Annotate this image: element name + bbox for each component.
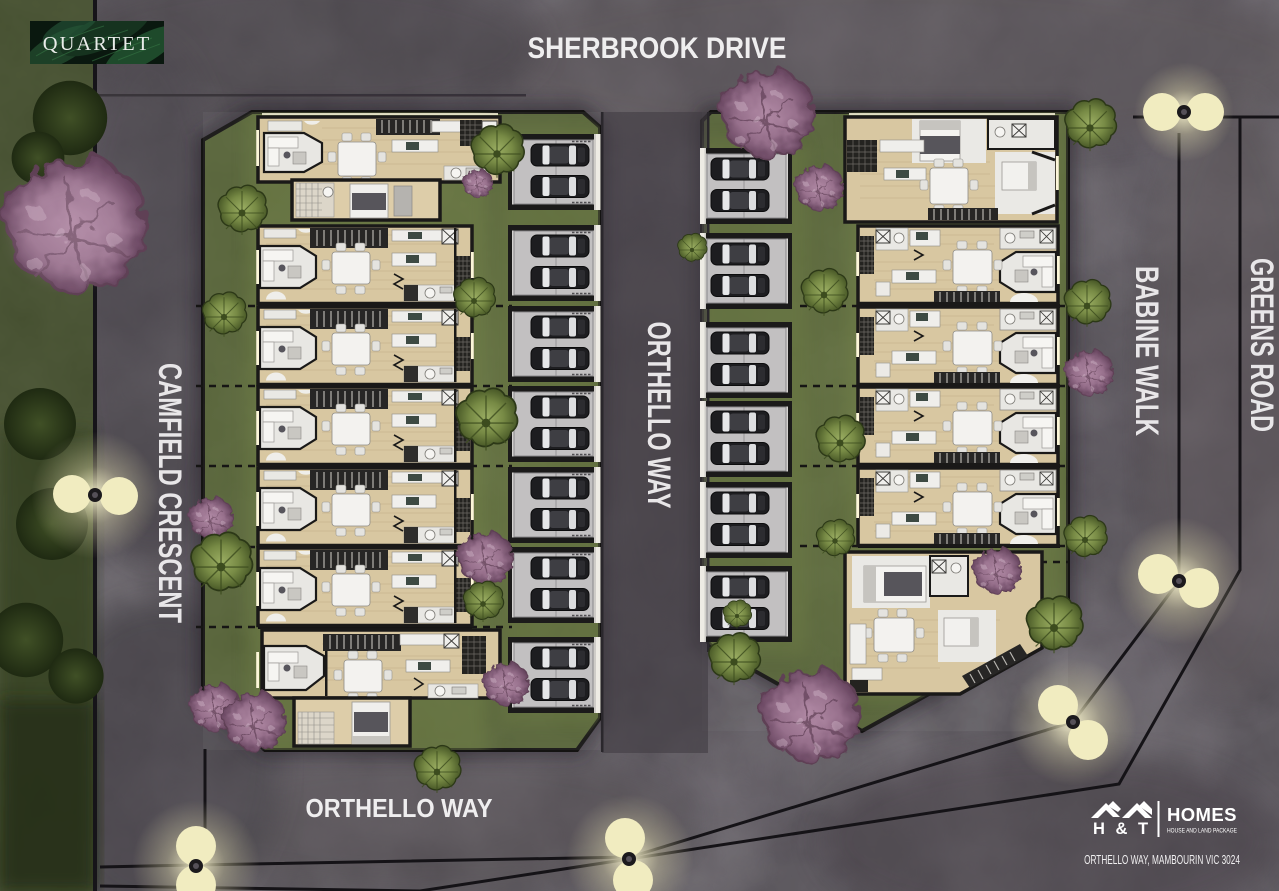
svg-text:ORTHELLO WAY: ORTHELLO WAY — [306, 793, 493, 823]
svg-text:BABINE WALK: BABINE WALK — [1129, 266, 1165, 436]
svg-text:ORTHELLO WAY, MAMBOURIN VIC 30: ORTHELLO WAY, MAMBOURIN VIC 3024 — [1084, 853, 1240, 867]
svg-text:HOMES: HOMES — [1167, 804, 1237, 825]
svg-text:CAMFIELD CRESCENT: CAMFIELD CRESCENT — [152, 363, 188, 623]
svg-text:QUARTET: QUARTET — [43, 33, 151, 55]
svg-text:SHERBROOK DRIVE: SHERBROOK DRIVE — [528, 32, 787, 65]
svg-text:GREENS ROAD: GREENS ROAD — [1244, 258, 1279, 432]
svg-text:H & T: H & T — [1093, 820, 1151, 838]
svg-text:HOUSE AND LAND PACKAGE: HOUSE AND LAND PACKAGE — [1167, 828, 1237, 835]
svg-text:ORTHELLO WAY: ORTHELLO WAY — [641, 322, 677, 509]
